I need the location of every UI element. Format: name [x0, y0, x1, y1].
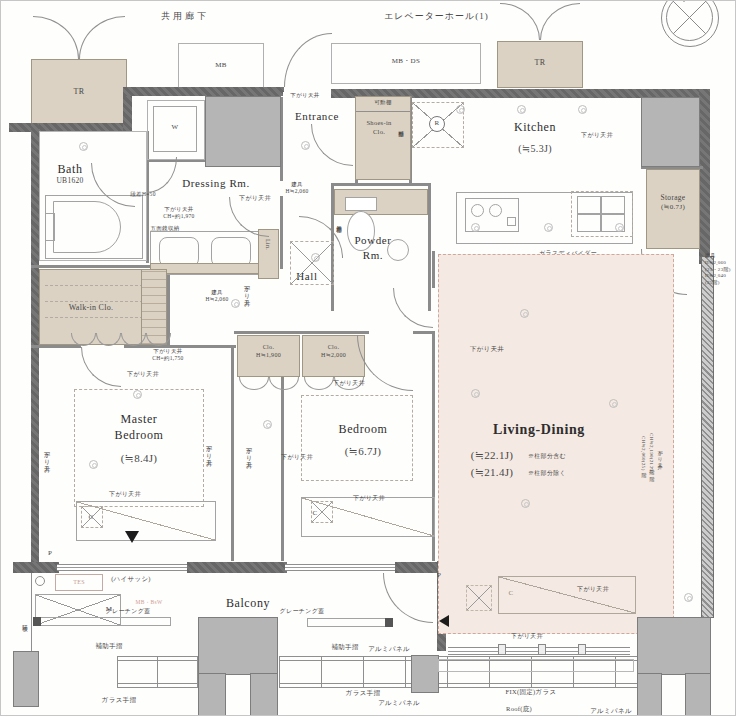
- window-bedroom: [285, 564, 395, 571]
- shelf-line: [356, 111, 410, 112]
- linen-label: Lin.: [264, 239, 272, 250]
- fix-post: [538, 644, 546, 655]
- lowered-ceiling-label: 下がり天井: [283, 92, 327, 99]
- window-master: [57, 564, 187, 571]
- wall-segment: [231, 345, 234, 561]
- glass-divider: [577, 196, 601, 214]
- railing-line: [279, 683, 637, 684]
- railing-line: [279, 656, 637, 657]
- alumi-panel-label: アルミパネル: [363, 645, 415, 654]
- glass-divider: [601, 196, 625, 214]
- lowered-ceiling-label: 下がり天井: [273, 453, 321, 461]
- bath-label: Bath: [45, 161, 95, 177]
- railing-line: [117, 656, 199, 657]
- wall-segment: [234, 331, 369, 334]
- section-arrow: [439, 615, 449, 627]
- railing-post: [405, 656, 406, 688]
- wall-segment: [699, 89, 710, 264]
- floor-hatch: [290, 241, 334, 285]
- lowered-ceiling-label: 下がり天井 CH=約1,750: [139, 348, 197, 363]
- downlight-icon: [517, 105, 526, 114]
- pillar-leg: [198, 673, 226, 716]
- railing-line: [117, 660, 199, 661]
- pillar-leg: [685, 673, 711, 716]
- bath-faucet: [45, 213, 55, 241]
- downlight-icon: [133, 390, 142, 399]
- mb-bsw-label: MB・BsW: [127, 599, 171, 606]
- door-arc: [500, 3, 540, 40]
- lowered-ceiling-label: 下がり天井 CH=約1,970: [153, 206, 205, 221]
- wall-segment: [432, 251, 435, 288]
- upper-cabinet-label: 上部吊戸棚: [335, 221, 342, 223]
- pillar: [637, 617, 711, 675]
- living-dining-label: Living-Dining: [459, 421, 619, 440]
- lowered-ceiling-label: 下がり天井: [205, 441, 213, 456]
- alumi-panel-label: アルミパネル: [373, 699, 425, 708]
- entrance-door-arc: [311, 124, 353, 166]
- lowered-ceiling-note-right: 下がり天井 CH≒2,190(21階・23階) CH≒2,060(25階): [639, 396, 663, 511]
- downlight-icon: [89, 460, 98, 469]
- front-door-arc: [284, 33, 332, 87]
- burner: [471, 204, 484, 217]
- compass-inner: [666, 0, 713, 41]
- downlight-icon: [521, 499, 530, 508]
- downlight-icon: [471, 389, 480, 398]
- balcony-edge: [31, 573, 32, 657]
- compass-icon: [661, 0, 719, 47]
- wall-segment: [331, 183, 431, 186]
- grating-end: [385, 618, 393, 627]
- downlight-icon: [684, 593, 693, 602]
- living-note-incl: ※柱部分含む: [528, 452, 580, 460]
- wall-segment: [123, 87, 284, 96]
- shoes-closet-label: Shoes-in Clo.: [355, 119, 403, 137]
- downlight-icon: [79, 142, 88, 151]
- p-label: P: [432, 571, 446, 580]
- fix-post: [578, 644, 586, 655]
- drain-circle: [35, 576, 45, 586]
- powder-label: Powder Rm.: [343, 233, 403, 263]
- railing-post: [157, 656, 158, 688]
- roof-eave: [438, 659, 634, 672]
- kitchen-label: Kitchen: [499, 119, 571, 135]
- lowered-ceiling-label: 下がり天井: [119, 370, 167, 378]
- side-block: [13, 651, 39, 707]
- movable-shelf-label: 可動棚: [397, 126, 404, 127]
- aux-handrail-label: 補助手摺: [85, 642, 133, 651]
- wall-segment: [187, 562, 287, 573]
- refrigerator-letter: R: [429, 119, 445, 128]
- lowered-ceiling-label: 下がり天井: [575, 131, 619, 139]
- fix-post: [498, 644, 506, 655]
- wall-segment: [31, 345, 81, 348]
- grating-cover: [33, 617, 171, 626]
- railing-line: [279, 687, 637, 688]
- lowered-ceiling-label: 下がり天井: [243, 281, 251, 296]
- master-bedroom-label: Master Bedroom: [91, 411, 187, 443]
- bath-model-label: UB1620: [43, 176, 97, 186]
- common-corridor-label: 共用廊下: [161, 10, 209, 22]
- glass-handrail-label: ガラス手摺: [337, 689, 389, 698]
- fitting-note-right: 建具 H≒2,060 (21・23階) H≒2,040 (25階): [705, 253, 736, 287]
- downlight-icon: [609, 399, 618, 408]
- wall-segment: [701, 256, 714, 618]
- grating-cover: [307, 618, 393, 627]
- closet-arrow: [125, 531, 139, 543]
- shaft-block: [641, 97, 700, 167]
- grating-label: グレーチング蓋: [271, 607, 333, 615]
- downlight-icon: [263, 420, 272, 429]
- downlight-icon: [615, 223, 624, 232]
- mb-ds-label: MB・DS: [331, 57, 481, 66]
- step-label: 段差H=50: [123, 191, 163, 198]
- water-heater-label: TES: [55, 578, 103, 586]
- bifold-door: [269, 377, 299, 390]
- alumi-panel-block: [411, 655, 439, 693]
- washer-label: W: [153, 123, 197, 132]
- hanger-pipe: [45, 301, 143, 302]
- lowered-ceiling-label: 下がり天井: [463, 345, 511, 354]
- trunk-room-top-label: TR: [497, 58, 583, 69]
- fix-glass-label: FIX(固定)ガラス: [491, 688, 571, 697]
- lowered-ceiling-label: 下がり天井: [43, 447, 51, 462]
- walkin-label: Walk-in Clo.: [41, 303, 141, 314]
- living-size-incl: (≒22.1J): [456, 448, 528, 463]
- aux-handrail-label: 補助手摺: [321, 643, 369, 652]
- pillar: [198, 617, 278, 675]
- grating-end: [33, 617, 41, 626]
- entrance-label: Entrance: [285, 109, 349, 124]
- pillar-leg: [250, 673, 278, 716]
- toilet-tank: [345, 197, 377, 211]
- bedroom-label: Bedroom: [317, 421, 409, 437]
- door-arc: [79, 16, 125, 59]
- lowered-ceiling-label: 下がり天井: [101, 490, 149, 498]
- downlight-icon: [471, 223, 480, 232]
- p-label: P: [43, 549, 57, 558]
- downlight-icon: [456, 105, 465, 114]
- storage-label: Storage: [646, 193, 700, 203]
- downlight-icon: [231, 299, 240, 308]
- lowered-ceiling-label: 下がり天井: [345, 494, 393, 502]
- downlight-icon: [544, 223, 553, 232]
- floor-plan: 共用廊下 エレベーターホール(1) TR MB MB・DS TR: [0, 0, 736, 716]
- closet-letter: C: [503, 589, 519, 598]
- door-arc: [33, 16, 79, 59]
- partition-label: 隔板: [21, 621, 28, 622]
- wall-segment: [281, 377, 284, 561]
- closet-b-label: Clo. H≒2,000: [302, 343, 365, 359]
- glass-divider: [577, 214, 601, 232]
- compass-north-needle: [677, 0, 691, 2]
- downlight-icon: [520, 309, 529, 318]
- railing-line: [117, 683, 199, 684]
- living-size-excl: (≒21.4J): [456, 465, 528, 480]
- floor-hatch: [81, 506, 103, 528]
- elevator-hall-label: エレベーターホール(1): [384, 10, 489, 22]
- living-note-excl: ※柱部分除く: [528, 469, 580, 477]
- floor-hatch: [466, 585, 492, 611]
- master-size-label: (≒8.4J): [94, 451, 184, 466]
- kitchen-size-label: (≒5.3J): [503, 142, 567, 156]
- bathtub-inner: [53, 201, 121, 253]
- closet-a-label: Clo. H≒1,900: [237, 343, 300, 359]
- downlight-icon: [311, 253, 320, 262]
- railing-post: [321, 656, 322, 688]
- lowered-ceiling-label: 下がり天井: [503, 632, 551, 640]
- roof-label: Roof(庇): [491, 705, 547, 714]
- movable-shelf-label: 可動棚: [355, 99, 411, 106]
- master-door-arc: [81, 347, 121, 387]
- glass-handrail-label: ガラス手摺: [93, 696, 145, 705]
- lowered-ceiling-label: 下がり天井: [245, 443, 253, 458]
- railing-post: [363, 656, 364, 688]
- trunk-room-left-label: TR: [31, 87, 127, 98]
- floor-hatch: [311, 501, 333, 523]
- bifold-door: [239, 377, 269, 390]
- shaft-block: [205, 96, 281, 167]
- shoes-in-closet: [355, 96, 411, 180]
- lowered-ceiling-label: 下がり天井: [325, 379, 373, 387]
- bedroom-size-label: (≒6.7J): [323, 444, 403, 459]
- hall-ld-door-arc: [393, 288, 433, 328]
- pillar-leg: [637, 673, 662, 716]
- door-arc: [540, 3, 580, 40]
- bedroom-floor-area: [301, 395, 413, 481]
- hanger-pipe: [45, 285, 143, 286]
- grating-label: グレーチング蓋: [97, 607, 159, 615]
- dressing-label: Dressing Rm.: [161, 176, 271, 191]
- railing-post: [279, 656, 280, 688]
- wall-segment: [13, 562, 59, 573]
- meter-box-label: MB: [178, 61, 264, 70]
- storage-size-label: (≒0.7J): [646, 203, 700, 212]
- railing-line: [117, 687, 199, 688]
- railing-post: [117, 656, 118, 688]
- burner: [489, 204, 502, 217]
- hanger-pipe: [45, 317, 143, 318]
- downlight-icon: [578, 105, 587, 114]
- sink-lever: [507, 217, 516, 226]
- alumi-panel-label: アルミパネル: [585, 707, 637, 716]
- downlight-icon: [301, 141, 310, 150]
- fitting-height-label: 建具 H≒2,060: [279, 181, 315, 196]
- high-sash-label: (ハイサッシ): [101, 575, 161, 584]
- balcony-door-arc: [383, 573, 433, 623]
